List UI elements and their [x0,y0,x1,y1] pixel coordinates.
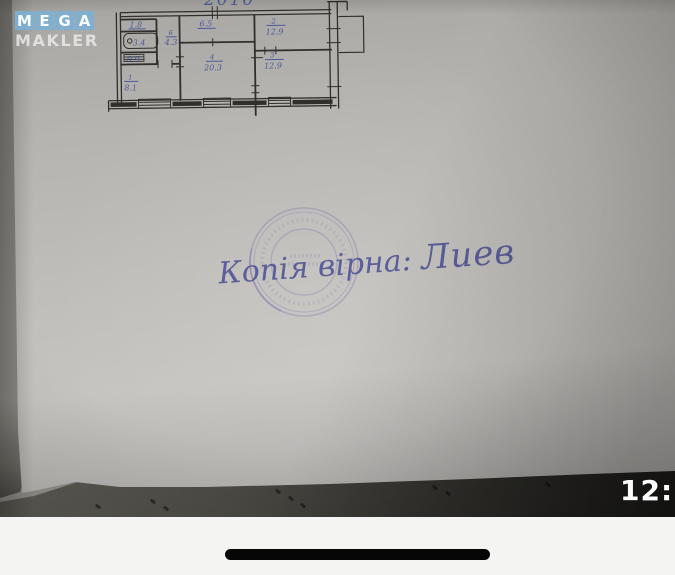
room-label-closet: 1.8 [129,20,142,29]
floorplan-drawing: 1.8 3.4 0.9 6 4.3 6.5 4 20.3 2 12.9 3 [99,0,371,126]
fabric-stitch [275,488,282,494]
room-labels: 1.8 3.4 0.9 6 4.3 6.5 4 20.3 2 12.9 3 [123,17,286,92]
fabric-stitch [150,498,157,504]
fabric-stitch [163,505,170,511]
room-label-2: 12.9 [266,27,284,36]
room-num-1: 1 [128,73,132,81]
fabric-stitch [300,502,307,508]
signature: Лиев [420,232,517,278]
fabric-stitch [545,481,552,487]
fabric-stitch [95,503,102,509]
logo-tile-m: M [15,11,34,30]
document-photo[interactable]: 2010 [0,0,675,517]
certification-text: Копія вірна: [217,243,413,291]
home-indicator[interactable] [225,549,490,560]
room-label-kitchen: 6.5 [199,19,212,28]
room-num-3: 3 [270,51,275,59]
mega-makler-watermark: M E G A MAKLER [15,11,99,50]
fabric-stitch [432,484,439,490]
bottom-system-bar [0,517,675,575]
balcony-outline [338,16,364,52]
room-label-wc: 0.9 [127,55,140,64]
clock-time: 12: [620,474,673,507]
room-label-1: 8.1 [124,83,137,92]
screen: 2010 [0,0,675,575]
paper-sheet: 2010 [0,0,675,517]
room-num-living: 4 [209,53,215,61]
logo-tile-e: E [35,11,54,30]
logo-mega-row: M E G A [15,11,99,30]
logo-makler-text: MAKLER [15,31,99,50]
room-num-hall: 6 [169,29,173,37]
room-label-hall: 4.3 [164,38,178,47]
room-label-living: 20.3 [203,63,222,72]
room-label-3: 12.9 [264,61,282,70]
fabric-stitch [445,490,452,496]
room-num-2: 2 [270,17,276,25]
logo-tile-g: G [55,11,74,30]
fabric-stitch [288,495,295,501]
logo-tile-a: A [75,11,94,30]
room-label-bath: 3.4 [133,38,146,47]
